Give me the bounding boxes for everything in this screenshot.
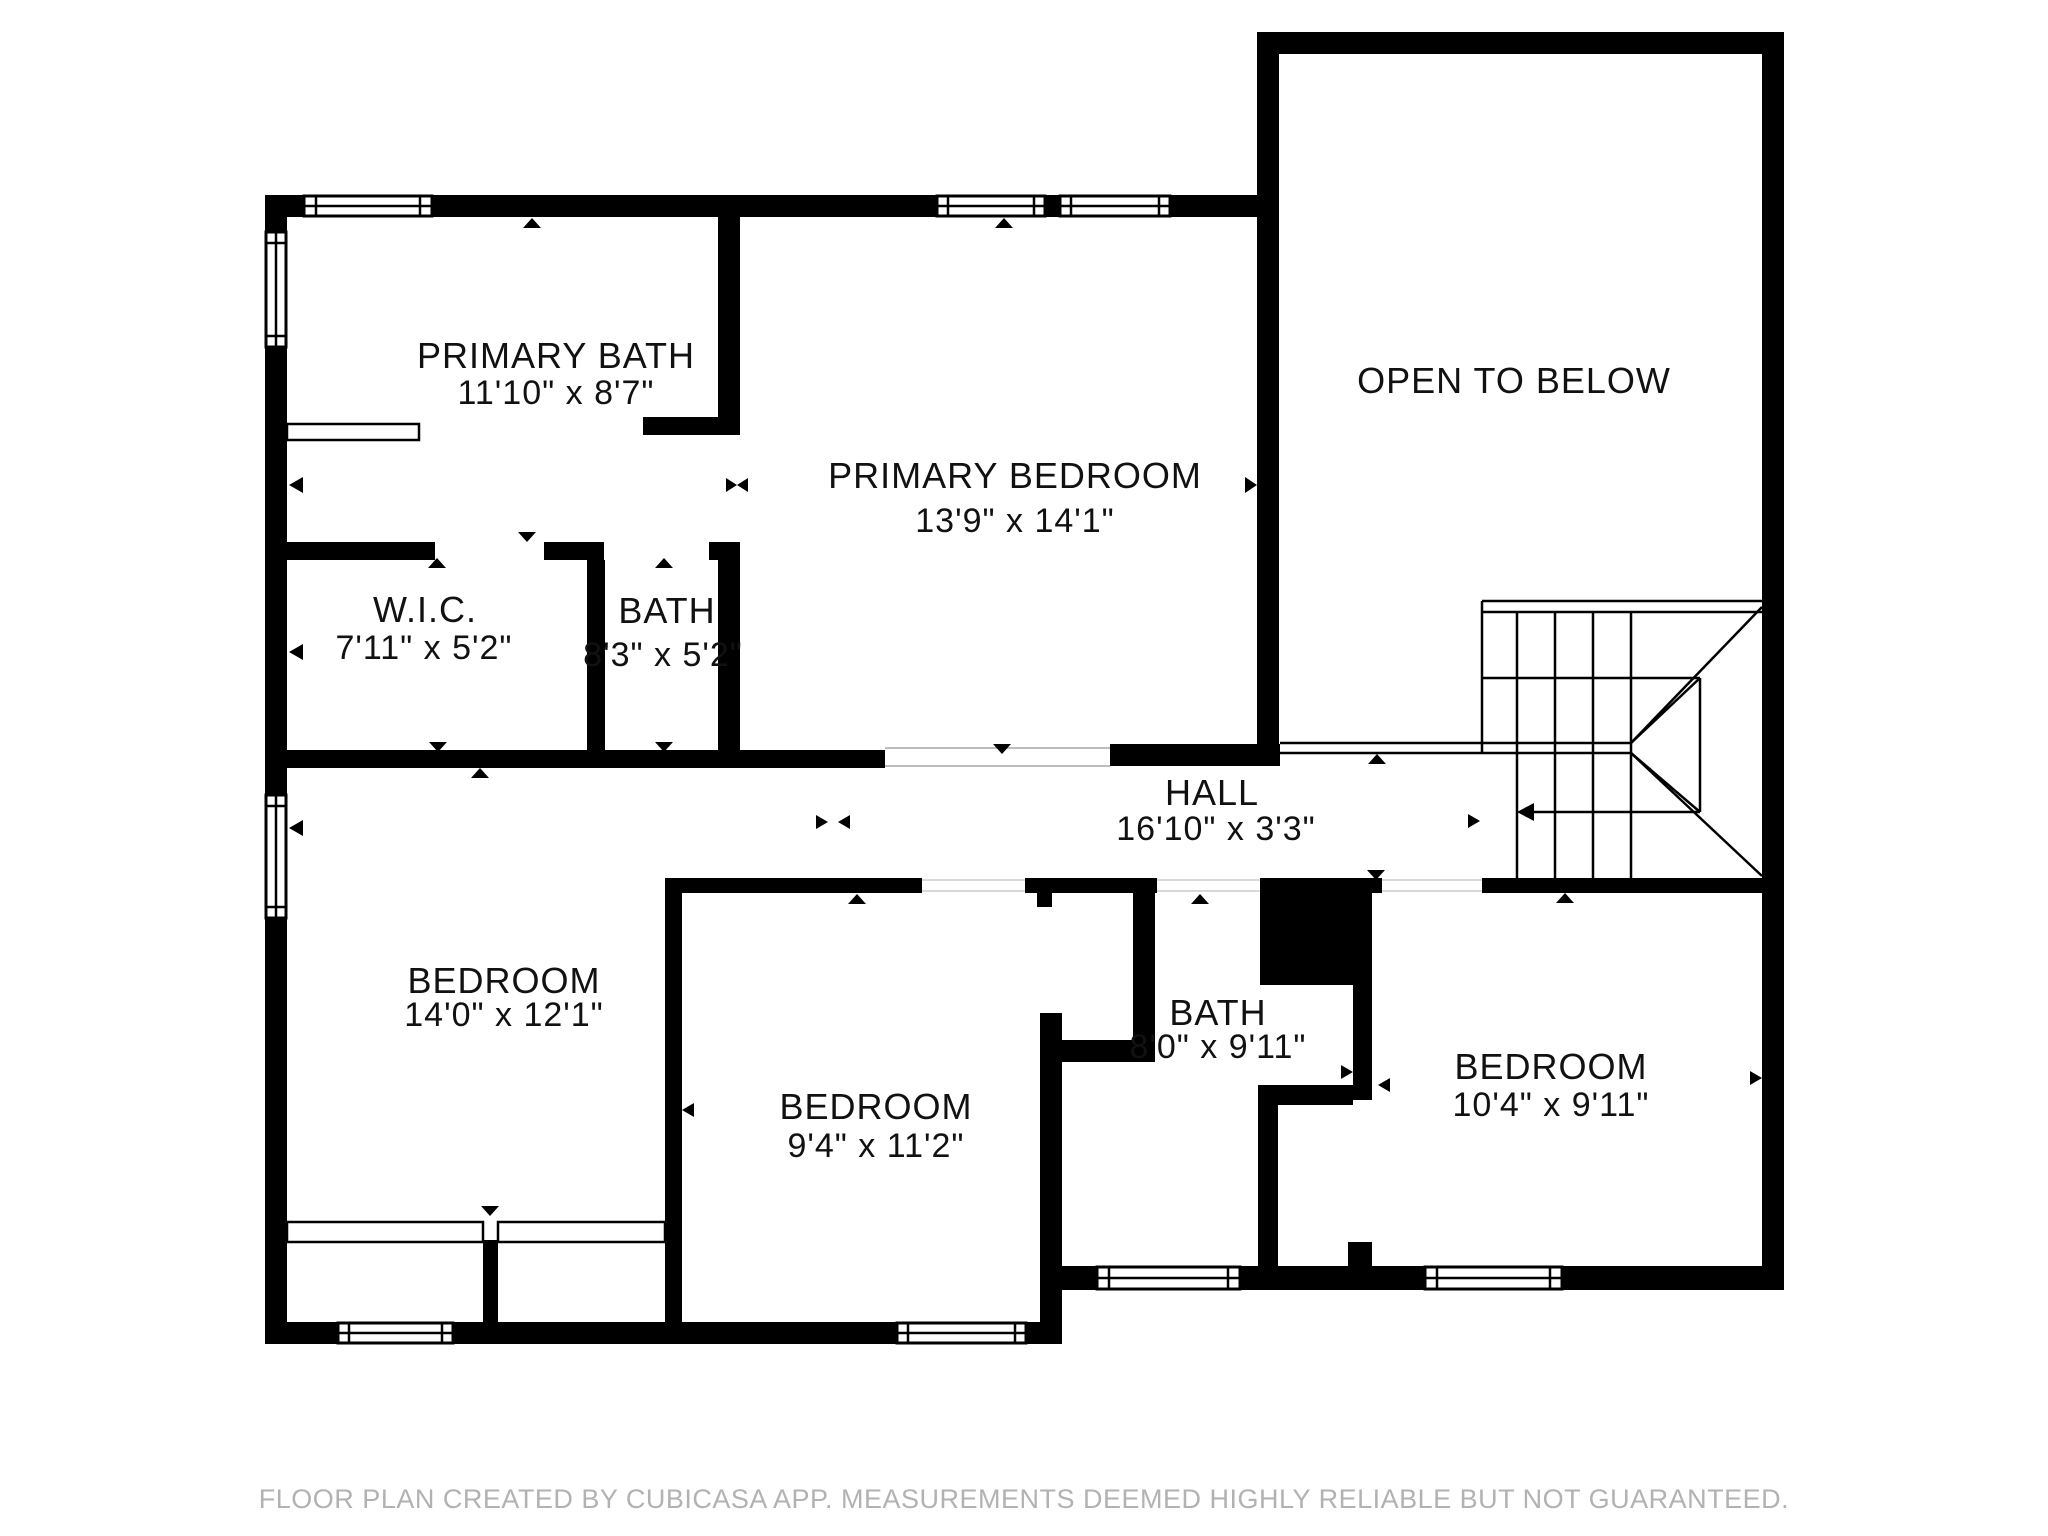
door-marker xyxy=(1750,1071,1762,1085)
wall xyxy=(483,1240,498,1322)
door-marker xyxy=(726,478,737,492)
door-marker xyxy=(1191,894,1209,904)
wall xyxy=(1482,878,1762,893)
room-dimensions: 8'0" x 9'11" xyxy=(1129,1028,1306,1066)
door-marker xyxy=(289,820,303,836)
wall xyxy=(665,878,682,1322)
wall xyxy=(1372,878,1382,893)
wall xyxy=(287,750,885,768)
wall xyxy=(1762,32,1784,1290)
room-label: PRIMARY BEDROOM xyxy=(828,455,1202,496)
door-marker xyxy=(682,1103,694,1117)
room-label: OPEN TO BELOW xyxy=(1357,360,1671,401)
door-marker xyxy=(1245,477,1257,493)
room-dimensions: 8'3" x 5'2" xyxy=(583,636,743,674)
wall xyxy=(1110,744,1280,766)
window xyxy=(1097,1267,1240,1289)
room-label: BATH xyxy=(1169,992,1266,1033)
room-dimensions: 10'4" x 9'11" xyxy=(1453,1086,1650,1124)
room-label: W.I.C. xyxy=(373,589,477,630)
chase-block xyxy=(1260,878,1372,985)
door-marker xyxy=(1341,1065,1353,1079)
room-dimensions: 13'9" x 14'1" xyxy=(915,502,1114,540)
closet-fronts xyxy=(287,1222,665,1242)
wall xyxy=(665,878,922,893)
door-marker xyxy=(289,644,303,660)
door-marker xyxy=(1556,893,1574,903)
window xyxy=(338,1323,453,1343)
door-marker xyxy=(1378,1078,1390,1092)
room-dimensions: 7'11" x 5'2" xyxy=(335,629,512,667)
door-marker xyxy=(518,532,536,542)
window xyxy=(1425,1267,1562,1289)
wall xyxy=(718,217,740,435)
room-dimensions: 16'10" x 3'3" xyxy=(1116,810,1315,848)
window xyxy=(1060,196,1170,216)
door-marker xyxy=(737,478,748,492)
wall xyxy=(1257,32,1784,54)
room-dimensions: 9'4" x 11'2" xyxy=(787,1127,964,1165)
room-label: BEDROOM xyxy=(779,1086,972,1127)
wall xyxy=(1257,32,1279,766)
door-marker xyxy=(838,815,850,829)
floor-plan: PRIMARY BATH 11'10" x 8'7" PRIMARY BEDRO… xyxy=(0,0,2048,1536)
window xyxy=(266,795,286,918)
room-dimensions: 14'0" x 12'1" xyxy=(404,996,603,1034)
staircase xyxy=(1280,601,1762,878)
wall xyxy=(265,195,287,1344)
vanity-counter xyxy=(287,424,419,440)
door-marker xyxy=(289,477,303,493)
wall xyxy=(1258,1085,1353,1105)
door-marker xyxy=(848,894,866,904)
wall xyxy=(287,542,435,560)
window xyxy=(266,232,286,347)
footer-disclaimer: FLOOR PLAN CREATED BY CUBICASA APP. MEAS… xyxy=(259,1484,1789,1514)
wall xyxy=(1025,878,1157,893)
window xyxy=(897,1323,1026,1343)
wall xyxy=(1258,1105,1278,1266)
room-label: HALL xyxy=(1165,772,1259,813)
door-marker xyxy=(523,218,541,228)
wall xyxy=(1040,1013,1062,1266)
wall xyxy=(1037,893,1052,907)
closet-door xyxy=(287,1222,483,1242)
floor-plan-canvas: PRIMARY BATH 11'10" x 8'7" PRIMARY BEDRO… xyxy=(0,0,2048,1536)
room-label: BEDROOM xyxy=(1454,1046,1647,1087)
door-marker xyxy=(471,768,489,778)
wall xyxy=(544,542,604,560)
door-marker xyxy=(481,1206,499,1216)
door-marker xyxy=(995,218,1013,228)
room-dimensions: 11'10" x 8'7" xyxy=(458,374,655,412)
door-marker xyxy=(1468,814,1480,828)
window xyxy=(304,196,432,216)
room-label: BATH xyxy=(618,590,715,631)
door-marker xyxy=(816,815,828,829)
wall xyxy=(643,417,740,435)
stairs-direction-arrow xyxy=(1517,803,1700,821)
wall xyxy=(1348,1242,1372,1266)
door-marker xyxy=(655,558,673,568)
door-marker xyxy=(1368,754,1386,764)
room-label: PRIMARY BATH xyxy=(417,335,695,376)
window xyxy=(937,196,1045,216)
room-label: BEDROOM xyxy=(407,960,600,1001)
wall xyxy=(1353,985,1372,1100)
closet-door xyxy=(498,1222,665,1242)
